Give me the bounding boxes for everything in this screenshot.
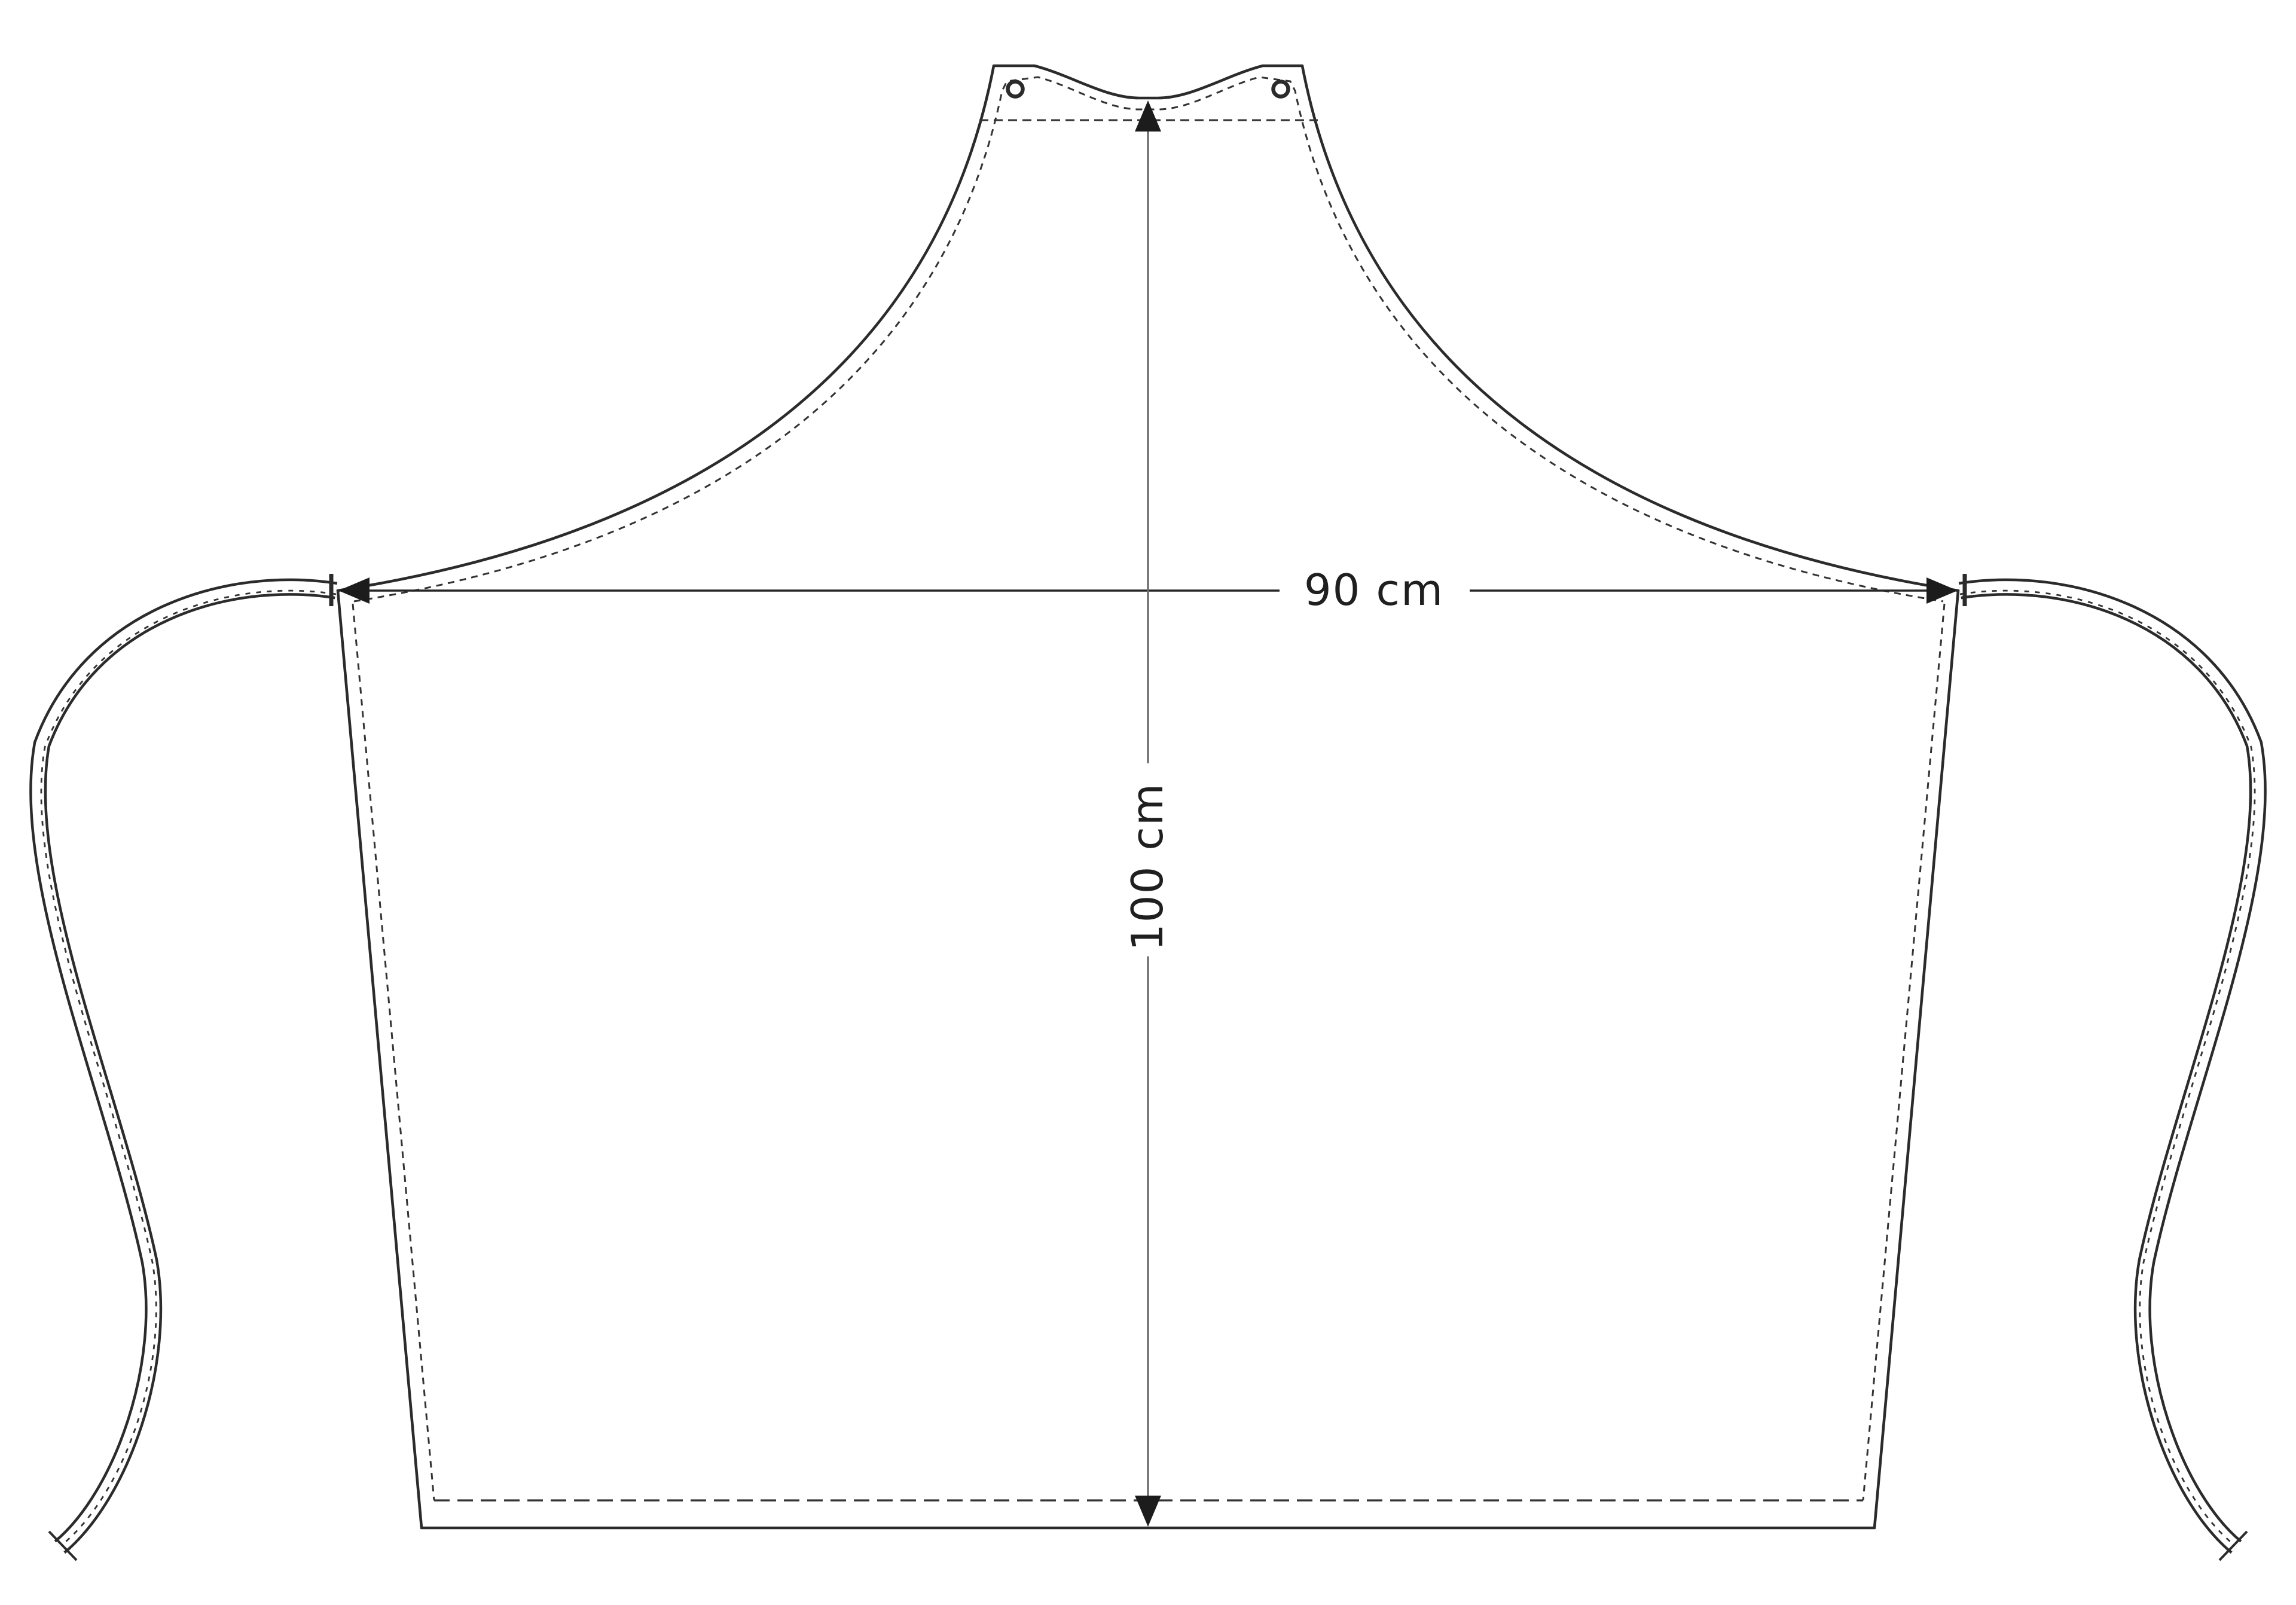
left-tie-outline [38,587,336,1547]
right-waist-tie [1960,587,2258,1560]
right-tie-outline [1960,587,2258,1547]
apron-pattern-diagram: 90 cm 100 cm [0,0,2296,1605]
left-waist-tie [38,587,336,1560]
height-dimension-label: 100 cm [1122,782,1173,951]
right-tie-stitch-line [1960,591,2255,1545]
diagram-canvas: 90 cm 100 cm [0,0,2296,1605]
left-tie-fill [38,587,336,1547]
right-tie-fill [1960,587,2258,1547]
left-tie-stitch-line [41,591,336,1545]
width-dimension-label: 90 cm [1304,565,1444,615]
